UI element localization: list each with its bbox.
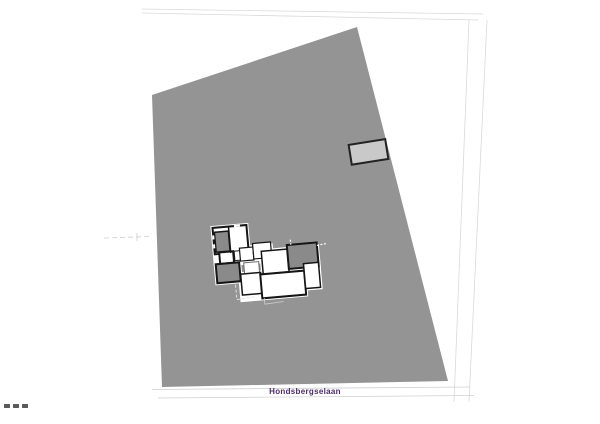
scale-mark xyxy=(22,404,28,408)
site-plan-drawing: Hondsbergselaan xyxy=(0,0,600,424)
street-label: Hondsbergselaan xyxy=(269,387,341,396)
scale-mark xyxy=(13,404,19,408)
room-dark-top-left xyxy=(214,231,230,252)
scale-mark xyxy=(4,404,10,408)
parcel-polygon xyxy=(152,27,448,387)
room-mid-small-1 xyxy=(239,247,254,261)
boundary-line-top-2 xyxy=(142,13,478,20)
boundary-line-right-1 xyxy=(454,20,469,402)
site-plan-canvas: Hondsbergselaan xyxy=(0,0,600,424)
scale-bar-marks xyxy=(4,404,28,408)
boundary-line-right-2 xyxy=(469,20,487,402)
room-bottom-right xyxy=(303,262,320,288)
room-bottom-large xyxy=(260,271,306,299)
boundary-line-top-1 xyxy=(142,9,483,14)
room-center-right xyxy=(261,249,289,274)
room-dark-bottom-left xyxy=(216,262,241,283)
window-notch xyxy=(234,226,240,227)
survey-dashed-line xyxy=(104,237,151,239)
room-bottom-left xyxy=(241,272,263,295)
